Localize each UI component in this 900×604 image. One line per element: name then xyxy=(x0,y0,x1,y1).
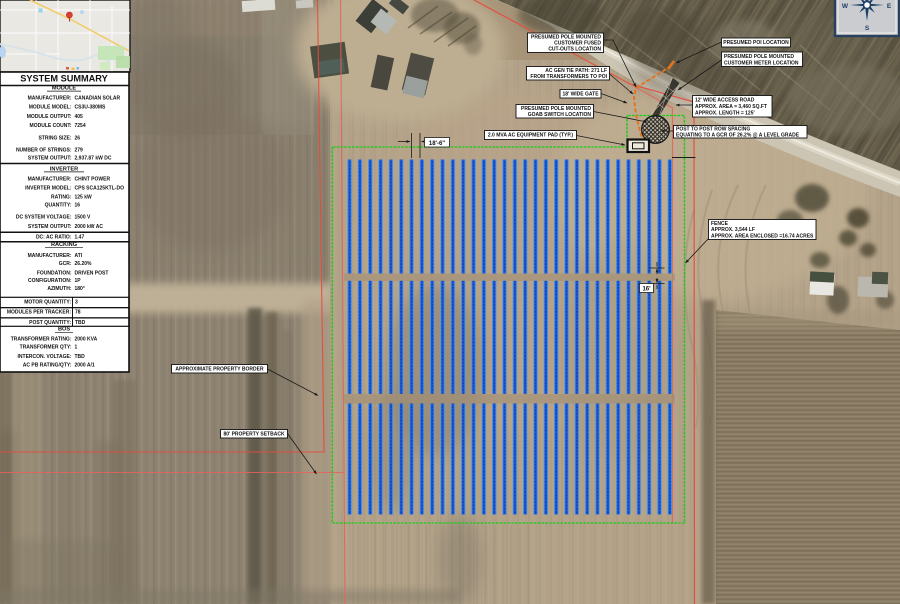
svg-text:STRING SIZE:: STRING SIZE: xyxy=(38,136,71,142)
svg-text:3: 3 xyxy=(75,299,78,305)
svg-text:PRESUMED POI LOCATION: PRESUMED POI LOCATION xyxy=(723,40,789,46)
svg-text:DRIVEN POST: DRIVEN POST xyxy=(75,270,109,276)
svg-text:TRANSFORMER RATING:: TRANSFORMER RATING: xyxy=(11,337,72,343)
svg-text:7254: 7254 xyxy=(75,123,86,129)
svg-text:ATI: ATI xyxy=(75,253,83,259)
svg-text:APPROXIMATE PROPERTY BORDER: APPROXIMATE PROPERTY BORDER xyxy=(175,366,264,372)
svg-text:AC PB RATING/QTY:: AC PB RATING/QTY: xyxy=(23,363,72,369)
svg-text:MODULE: MODULE xyxy=(52,86,77,92)
svg-text:MANUFACTURER:: MANUFACTURER: xyxy=(28,253,72,259)
svg-text:CS3U-380MS: CS3U-380MS xyxy=(75,105,107,111)
svg-text:CHINT POWER: CHINT POWER xyxy=(75,177,111,183)
svg-text:INVERTER MODEL:: INVERTER MODEL: xyxy=(25,186,72,192)
svg-text:NUMBER OF STRINGS:: NUMBER OF STRINGS: xyxy=(16,148,72,154)
svg-text:SYSTEM SUMMARY: SYSTEM SUMMARY xyxy=(20,74,107,84)
svg-text:INTERCON. VOLTAGE:: INTERCON. VOLTAGE: xyxy=(18,354,72,360)
svg-text:PRESUMED POLE MOUNTED: PRESUMED POLE MOUNTED xyxy=(724,54,794,60)
svg-text:APPROX. AREA = 3,460 SQ.FT: APPROX. AREA = 3,460 SQ.FT xyxy=(695,104,767,110)
svg-text:1.47: 1.47 xyxy=(75,234,85,240)
svg-text:26.20%: 26.20% xyxy=(75,261,93,267)
svg-text:279: 279 xyxy=(75,148,84,154)
svg-text:W: W xyxy=(842,3,849,10)
svg-text:APPROX. 3,544 LF: APPROX. 3,544 LF xyxy=(711,227,755,233)
svg-text:78: 78 xyxy=(75,310,81,316)
svg-text:1500 V: 1500 V xyxy=(75,214,92,220)
svg-text:125 kW: 125 kW xyxy=(75,194,93,200)
svg-text:CPS SCA125KTL-DO: CPS SCA125KTL-DO xyxy=(75,186,125,192)
svg-text:RACKING: RACKING xyxy=(51,242,77,248)
svg-text:2.0 MVA AC EQUIPMENT PAD (TYP.: 2.0 MVA AC EQUIPMENT PAD (TYP.) xyxy=(488,133,574,139)
svg-text:E: E xyxy=(887,3,892,10)
svg-text:DC SYSTEM VOLTAGE:: DC SYSTEM VOLTAGE: xyxy=(16,214,72,220)
svg-text:SYSTEM OUTPUT:: SYSTEM OUTPUT: xyxy=(28,156,72,162)
svg-text:CUT-OUTS LOCATION: CUT-OUTS LOCATION xyxy=(548,46,601,52)
svg-text:16: 16 xyxy=(75,203,81,209)
svg-text:TRANSFORMER QTY:: TRANSFORMER QTY: xyxy=(20,345,72,351)
svg-text:INVERTER: INVERTER xyxy=(50,166,78,172)
svg-text:EQUATING TO A GCR OF 26.2% @: EQUATING TO A GCR OF 26.2% @ A LEVEL GRA… xyxy=(676,132,800,138)
svg-text:MANUFACTURER:: MANUFACTURER: xyxy=(28,96,72,102)
svg-text:CANADIAN SOLAR: CANADIAN SOLAR xyxy=(75,96,121,102)
svg-text:MANUFACTURER:: MANUFACTURER: xyxy=(28,177,72,183)
svg-text:CUSTOMER METER LOCATION: CUSTOMER METER LOCATION xyxy=(724,60,799,66)
svg-text:180°: 180° xyxy=(75,286,85,292)
svg-text:12' WIDE ACCESS ROAD: 12' WIDE ACCESS ROAD xyxy=(695,98,755,104)
svg-text:QUANTITY:: QUANTITY: xyxy=(45,203,72,209)
svg-text:MOTOR QUANTITY:: MOTOR QUANTITY: xyxy=(24,299,71,305)
svg-text:1: 1 xyxy=(75,345,78,351)
svg-text:BOS: BOS xyxy=(58,327,70,333)
svg-text:CONFIGURATION:: CONFIGURATION: xyxy=(28,278,72,284)
svg-text:RATING:: RATING: xyxy=(51,194,72,200)
svg-text:405: 405 xyxy=(75,114,84,120)
svg-text:80' PROPERTY SETBACK: 80' PROPERTY SETBACK xyxy=(223,431,285,437)
svg-text:SYSTEM OUTPUT:: SYSTEM OUTPUT: xyxy=(28,224,72,230)
svg-text:S: S xyxy=(865,25,870,32)
svg-text:TBD: TBD xyxy=(75,320,86,326)
svg-text:APPROX. LENGTH = 125': APPROX. LENGTH = 125' xyxy=(695,110,755,116)
svg-text:PRESUMED POLE MOUNTED: PRESUMED POLE MOUNTED xyxy=(521,106,591,112)
svg-text:FENCE: FENCE xyxy=(711,221,729,227)
svg-text:MODULE OUTPUT:: MODULE OUTPUT: xyxy=(27,114,72,120)
svg-text:26: 26 xyxy=(75,136,81,142)
svg-text:16': 16' xyxy=(642,287,651,293)
svg-text:GCR:: GCR: xyxy=(59,261,72,267)
svg-text:2000 A/1: 2000 A/1 xyxy=(75,363,95,369)
svg-text:AC GEN TIE PATH: 271 LF: AC GEN TIE PATH: 271 LF xyxy=(545,68,607,74)
svg-text:TBD: TBD xyxy=(75,354,86,360)
svg-text:18'-6": 18'-6" xyxy=(429,141,445,147)
svg-text:APPROX. AREA ENCLOSED =16.74 A: APPROX. AREA ENCLOSED =16.74 ACRES xyxy=(711,233,814,239)
svg-text:AZIMUTH:: AZIMUTH: xyxy=(47,286,71,292)
svg-text:FROM TRANSFORMERS TO POI: FROM TRANSFORMERS TO POI xyxy=(530,74,607,80)
svg-text:MODULE MODEL:: MODULE MODEL: xyxy=(29,105,72,111)
svg-text:18' WIDE GATE: 18' WIDE GATE xyxy=(562,91,599,97)
svg-text:2000 kW AC: 2000 kW AC xyxy=(75,224,104,230)
svg-text:2000 KVA: 2000 KVA xyxy=(75,337,98,343)
svg-text:POST QUANTITY:: POST QUANTITY: xyxy=(29,320,71,326)
svg-text:FOUNDATION:: FOUNDATION: xyxy=(37,270,72,276)
svg-text:MODULE COUNT:: MODULE COUNT: xyxy=(30,123,72,129)
svg-text:MODULES PER TRACKER:: MODULES PER TRACKER: xyxy=(7,310,72,316)
svg-text:GOAB SWITCH LOCATION: GOAB SWITCH LOCATION xyxy=(528,112,592,118)
svg-text:1P: 1P xyxy=(75,278,82,284)
svg-text:2,937.87 kW DC: 2,937.87 kW DC xyxy=(75,156,112,162)
svg-text:DC: AC RATIO:: DC: AC RATIO: xyxy=(36,234,72,240)
